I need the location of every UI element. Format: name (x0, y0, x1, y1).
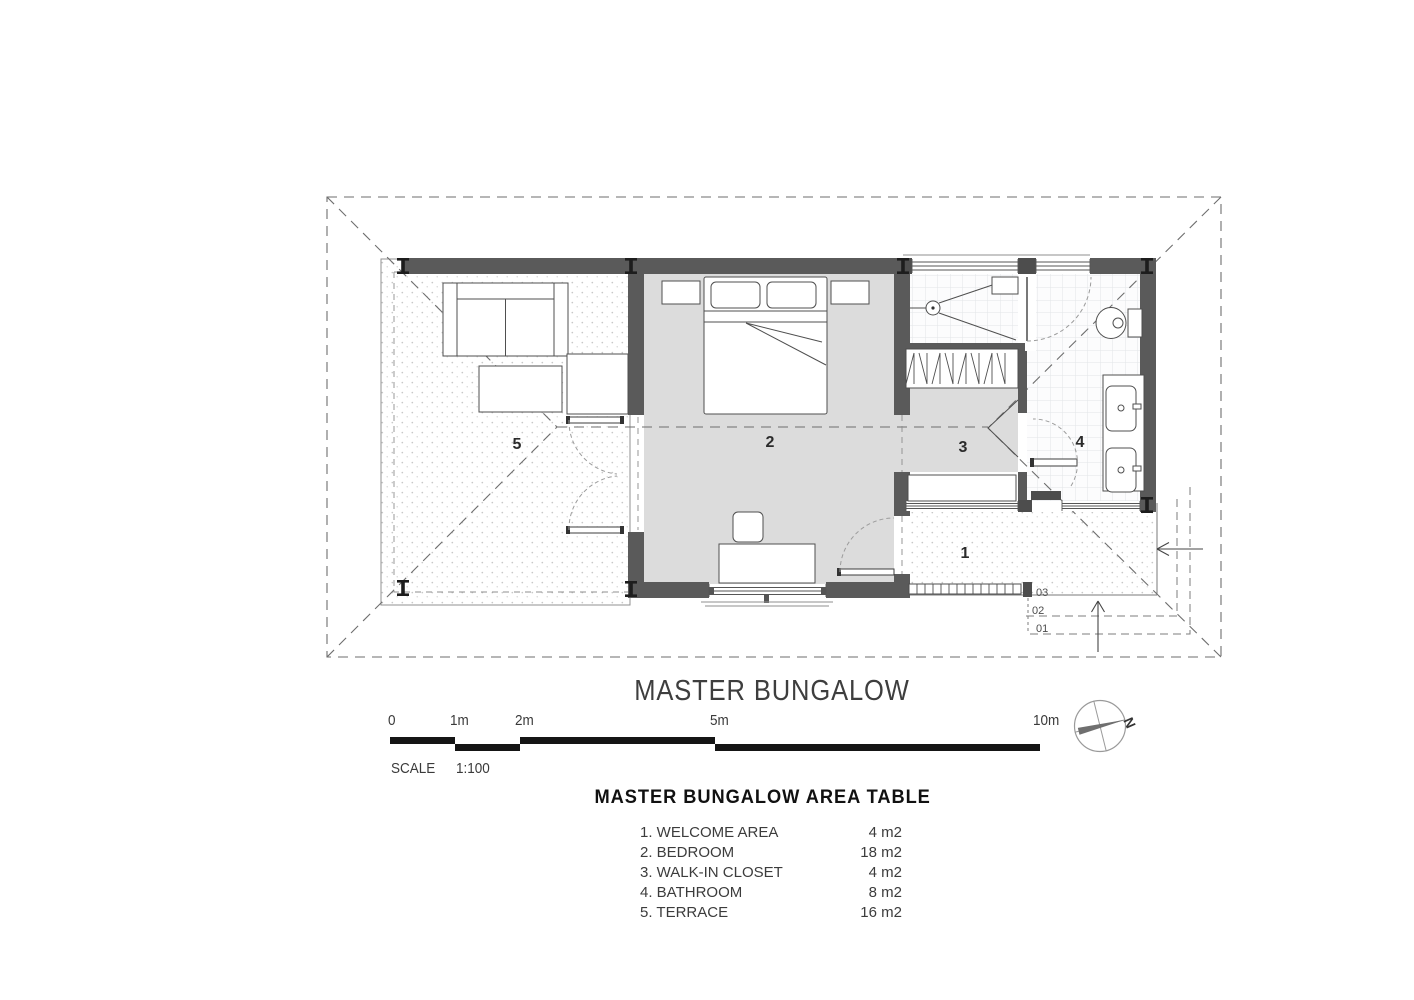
entry-grille (909, 584, 1021, 594)
vanity-sinks (1103, 375, 1144, 492)
scale-bar-segment (520, 737, 715, 744)
room-area: 16 m2 (860, 903, 902, 923)
north-compass-icon: N (1068, 691, 1143, 757)
scale-tick-5m: 5m (710, 712, 731, 729)
step-label-02: 02 (1032, 605, 1044, 617)
area-row: 5. TERRACE 16 m2 (588, 903, 910, 923)
scale-bar-segment (455, 744, 520, 751)
room-area: 18 m2 (860, 843, 902, 863)
welcome-floor (910, 503, 1157, 595)
sofa (443, 283, 568, 356)
area-row: 1. WELCOME AREA 4 m2 (588, 823, 910, 843)
scale-tick-10m: 10m (1033, 712, 1062, 729)
scale-bar: 0 1m 2m 5m 10m (390, 712, 1050, 756)
room-name: 5. TERRACE (640, 903, 728, 923)
north-label: N (1120, 715, 1139, 731)
area-table: MASTER BUNGALOW AREA TABLE 1. WELCOME AR… (588, 787, 910, 923)
area-table-title: MASTER BUNGALOW AREA TABLE (594, 787, 903, 809)
area-row: 4. BATHROOM 8 m2 (588, 883, 910, 903)
toilet-icon (1096, 308, 1142, 339)
room-label-terrace: 5 (513, 436, 522, 453)
coffee-table (479, 366, 562, 412)
step-label-03: 03 (1036, 587, 1048, 599)
area-table-rows: 1. WELCOME AREA 4 m2 2. BEDROOM 18 m2 3.… (588, 823, 910, 923)
room-label-welcome: 1 (961, 545, 970, 562)
area-row: 2. BEDROOM 18 m2 (588, 843, 910, 863)
room-name: 1. WELCOME AREA (640, 823, 778, 843)
room-name: 2. BEDROOM (640, 843, 734, 863)
step-label-01: 01 (1036, 623, 1048, 635)
area-row: 3. WALK-IN CLOSET 4 m2 (588, 863, 910, 883)
bed (704, 277, 827, 414)
desk (719, 544, 815, 583)
room-name: 3. WALK-IN CLOSET (640, 863, 783, 883)
terrace-door-leaf-upper (569, 417, 622, 423)
room-area: 4 m2 (869, 823, 902, 843)
scale-value: 1:100 (456, 760, 494, 777)
nightstand-right (831, 281, 869, 304)
nightstand-left (662, 281, 700, 304)
room-label-bathroom: 4 (1076, 434, 1085, 451)
room-label-closet: 3 (959, 439, 968, 456)
scale-tick-2m: 2m (515, 712, 536, 729)
wardrobe-hangers (906, 349, 1018, 388)
terrace-door-leaf-lower (569, 527, 622, 533)
closet-bench (908, 475, 1016, 501)
room-area: 8 m2 (869, 883, 902, 903)
desk-chair (733, 512, 763, 542)
scale-bar-segment (390, 737, 455, 744)
room-label-bedroom: 2 (766, 434, 775, 451)
shower-niche (992, 277, 1018, 294)
drawing-sheet: 5 2 3 4 1 03 02 01 N MASTER BUNGALOW 0 1… (0, 0, 1414, 1000)
side-table (567, 354, 628, 414)
entry-door-leaf (1033, 459, 1077, 466)
closet-floor (906, 388, 1018, 472)
room-name: 4. BATHROOM (640, 883, 742, 903)
scale-bar-segment (715, 744, 1040, 751)
plan-title: MASTER BUNGALOW (596, 675, 948, 708)
scale-label: SCALE (391, 760, 440, 777)
bedroom-door-leaf (840, 569, 894, 575)
scale-tick-1m: 1m (450, 712, 471, 729)
scale-tick-0: 0 (388, 712, 396, 729)
room-area: 4 m2 (869, 863, 902, 883)
entry-threshold (1031, 491, 1061, 500)
